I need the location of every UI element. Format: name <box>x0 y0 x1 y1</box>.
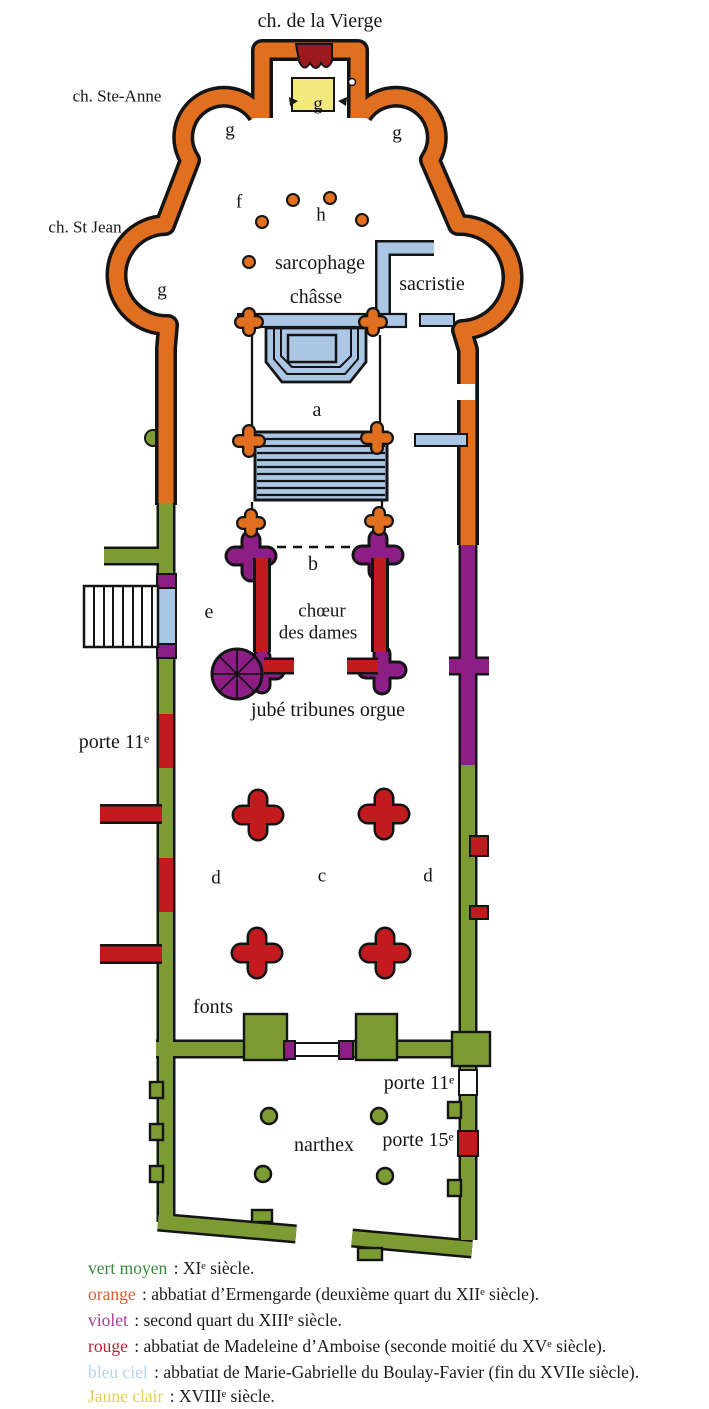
label-c: c <box>318 867 326 886</box>
label-h: h <box>316 206 326 225</box>
label-f: f <box>236 193 242 212</box>
label-g-right: g <box>392 124 402 143</box>
label-sarcophage: sarcophage <box>275 253 365 273</box>
label-d-right: d <box>423 867 433 886</box>
legend-text: : XVIIIᵉ siècle. <box>165 1386 274 1406</box>
legend-item-bleu-ciel: bleu ciel : abbatiat de Marie-Gabrielle … <box>88 1362 639 1383</box>
violet-walls-13e <box>235 539 489 765</box>
west-portal <box>295 1043 339 1056</box>
legend-color-word: rouge <box>88 1336 128 1356</box>
label-e: e <box>205 602 214 622</box>
altar-15e <box>296 44 332 68</box>
legend-text: : second quart du XIIIᵉ siècle. <box>130 1310 342 1330</box>
arrow-marker <box>338 97 347 106</box>
blue-wall-segment <box>157 586 176 646</box>
label-g-left: g <box>225 121 235 140</box>
label-narthex: narthex <box>294 1135 354 1155</box>
porte-15-door-section <box>458 1131 478 1156</box>
narthex-pier-left <box>244 1014 287 1060</box>
label-chasse: châsse <box>290 287 342 307</box>
legend-text: : XIᵉ siècle. <box>169 1258 254 1278</box>
tower-pier <box>452 1032 490 1066</box>
legend-text: : abbatiat de Marie-Gabrielle du Boulay-… <box>150 1362 639 1382</box>
legend-text: : abbatiat de Madeleine d’Amboise (secon… <box>130 1336 606 1356</box>
chapel-vierge-label: ch. de la Vierge <box>258 11 383 31</box>
abbey-floor-plan-figure: ch. de la Vierge ch. Ste-Anne ch. St Jea… <box>0 0 709 1409</box>
legend-item-orange: orange : abbatiat d’Ermengarde (deuxième… <box>88 1284 539 1305</box>
spiral-staircase <box>212 649 262 699</box>
label-porte-11-narthex: porte 11ᵉ <box>384 1073 454 1093</box>
legend-color-word: vert moyen <box>88 1258 167 1278</box>
label-jube-tribunes-orgue: jubé tribunes orgue <box>251 700 405 720</box>
label-d-left: d <box>211 869 221 888</box>
label-g-st-jean: g <box>157 281 167 300</box>
label-sacristie: sacristie <box>399 274 465 294</box>
west-door-jamb-left <box>284 1041 295 1059</box>
legend-color-word: violet <box>88 1310 128 1330</box>
chapel-st-jean-label: ch. St Jean <box>48 219 121 236</box>
label-des-dames: des dames <box>279 624 358 643</box>
exterior-staircase <box>84 586 158 647</box>
legend-item-rouge: rouge : abbatiat de Madeleine d’Amboise … <box>88 1336 606 1357</box>
nave-pier <box>242 799 274 831</box>
legend-color-word: Jaune clair <box>88 1386 163 1406</box>
label-choeur: chœur <box>298 602 345 621</box>
legend-item-jaune-clair: Jaune clair : XVIIIᵉ siècle. <box>88 1386 275 1407</box>
legend-color-word: orange <box>88 1284 136 1304</box>
nave-pier <box>241 937 273 969</box>
legend-item-vert-moyen: vert moyen : XIᵉ siècle. <box>88 1258 254 1279</box>
chapel-ste-anne-label: ch. Ste-Anne <box>73 88 162 105</box>
label-b: b <box>308 554 318 574</box>
label-fonts: fonts <box>193 997 233 1017</box>
label-g-center: g <box>313 95 323 114</box>
nave-pier <box>368 798 400 830</box>
legend-item-violet: violet : second quart du XIIIᵉ siècle. <box>88 1310 342 1331</box>
label-a: a <box>313 400 322 420</box>
label-porte-11-nave: porte 11ᵉ <box>79 732 149 752</box>
label-porte-15: porte 15ᵉ <box>382 1130 453 1150</box>
legend-text: : abbatiat d’Ermengarde (deuxième quart … <box>138 1284 539 1304</box>
west-door-jamb-right <box>339 1041 353 1059</box>
wall-gap <box>453 384 475 400</box>
narthex-pier-right <box>356 1014 397 1060</box>
porte-11-narthex-opening <box>459 1070 477 1095</box>
legend-color-word: bleu ciel <box>88 1362 148 1382</box>
nave-pier <box>369 937 401 969</box>
